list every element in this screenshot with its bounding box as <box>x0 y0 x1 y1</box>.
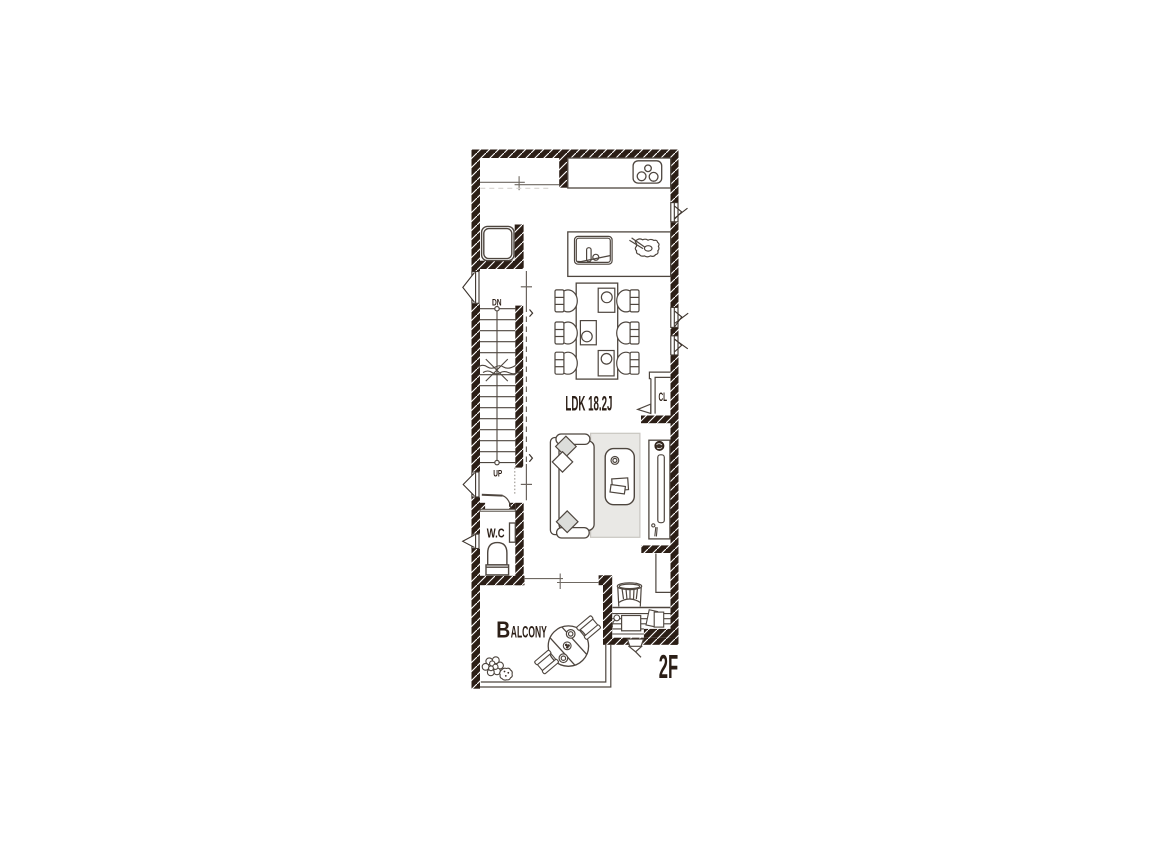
svg-text:UP: UP <box>493 468 502 479</box>
svg-text:DN: DN <box>492 298 502 309</box>
svg-text:LDK 18.2J: LDK 18.2J <box>565 393 612 416</box>
svg-text:ALCONY: ALCONY <box>511 623 547 642</box>
svg-text:CL: CL <box>659 390 668 404</box>
svg-text:B: B <box>496 617 510 643</box>
svg-text:2F: 2F <box>659 648 678 685</box>
svg-text:W.C: W.C <box>487 525 505 540</box>
